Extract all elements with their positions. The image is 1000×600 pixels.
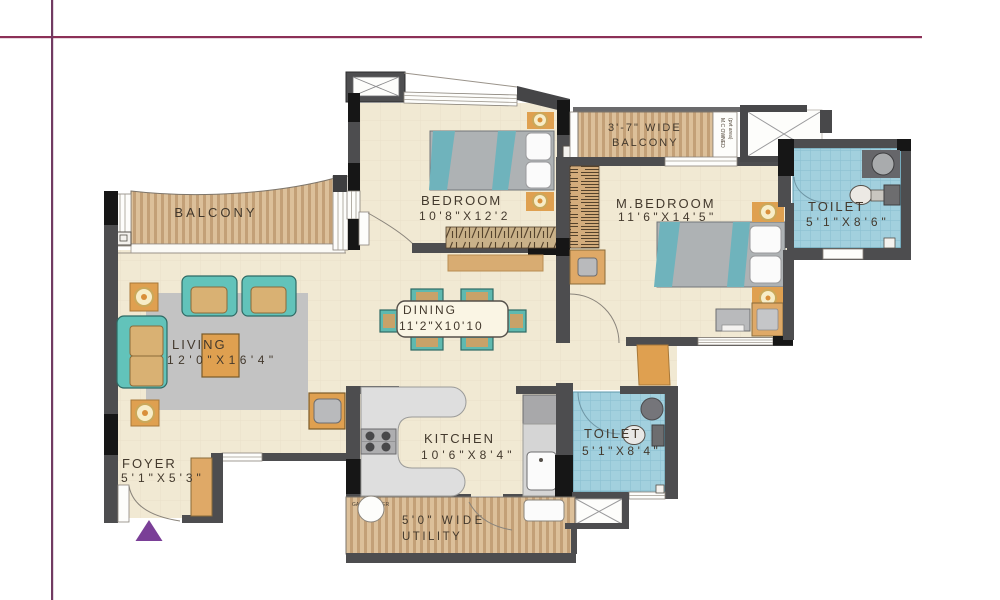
svg-text:FOYER: FOYER (122, 456, 177, 471)
svg-text:10'8"X12'2: 10'8"X12'2 (419, 209, 511, 223)
svg-text:TOILET: TOILET (808, 199, 865, 214)
svg-text:5'1"X8'6": 5'1"X8'6" (806, 215, 890, 229)
svg-text:DINING: DINING (403, 303, 457, 317)
svg-text:5'1"X8'4": 5'1"X8'4" (582, 444, 661, 458)
svg-text:UTILITY: UTILITY (402, 531, 462, 543)
svg-text:LIVING: LIVING (172, 337, 227, 352)
svg-text:12'0"X16'4": 12'0"X16'4" (167, 353, 278, 367)
svg-text:BEDROOM: BEDROOM (421, 193, 502, 208)
svg-text:5'1"X5'3": 5'1"X5'3" (121, 471, 205, 485)
svg-text:TOILET: TOILET (584, 426, 641, 441)
svg-text:KITCHEN: KITCHEN (424, 431, 495, 446)
svg-text:11'6"X14'5": 11'6"X14'5" (618, 210, 717, 224)
svg-text:M.C OWNED: M.C OWNED (719, 118, 725, 148)
svg-text:3'-7" WIDE: 3'-7" WIDE (608, 122, 682, 134)
svg-text:11'2"X10'10: 11'2"X10'10 (399, 319, 484, 333)
svg-text:10'6"X8'4": 10'6"X8'4" (421, 448, 515, 462)
svg-text:5'0" WIDE: 5'0" WIDE (402, 515, 486, 527)
svg-text:BALCONY: BALCONY (174, 205, 257, 220)
svg-text:M.BEDROOM: M.BEDROOM (616, 196, 716, 211)
svg-text:BALCONY: BALCONY (612, 137, 679, 149)
svg-text:(pvt area): (pvt area) (727, 118, 733, 140)
